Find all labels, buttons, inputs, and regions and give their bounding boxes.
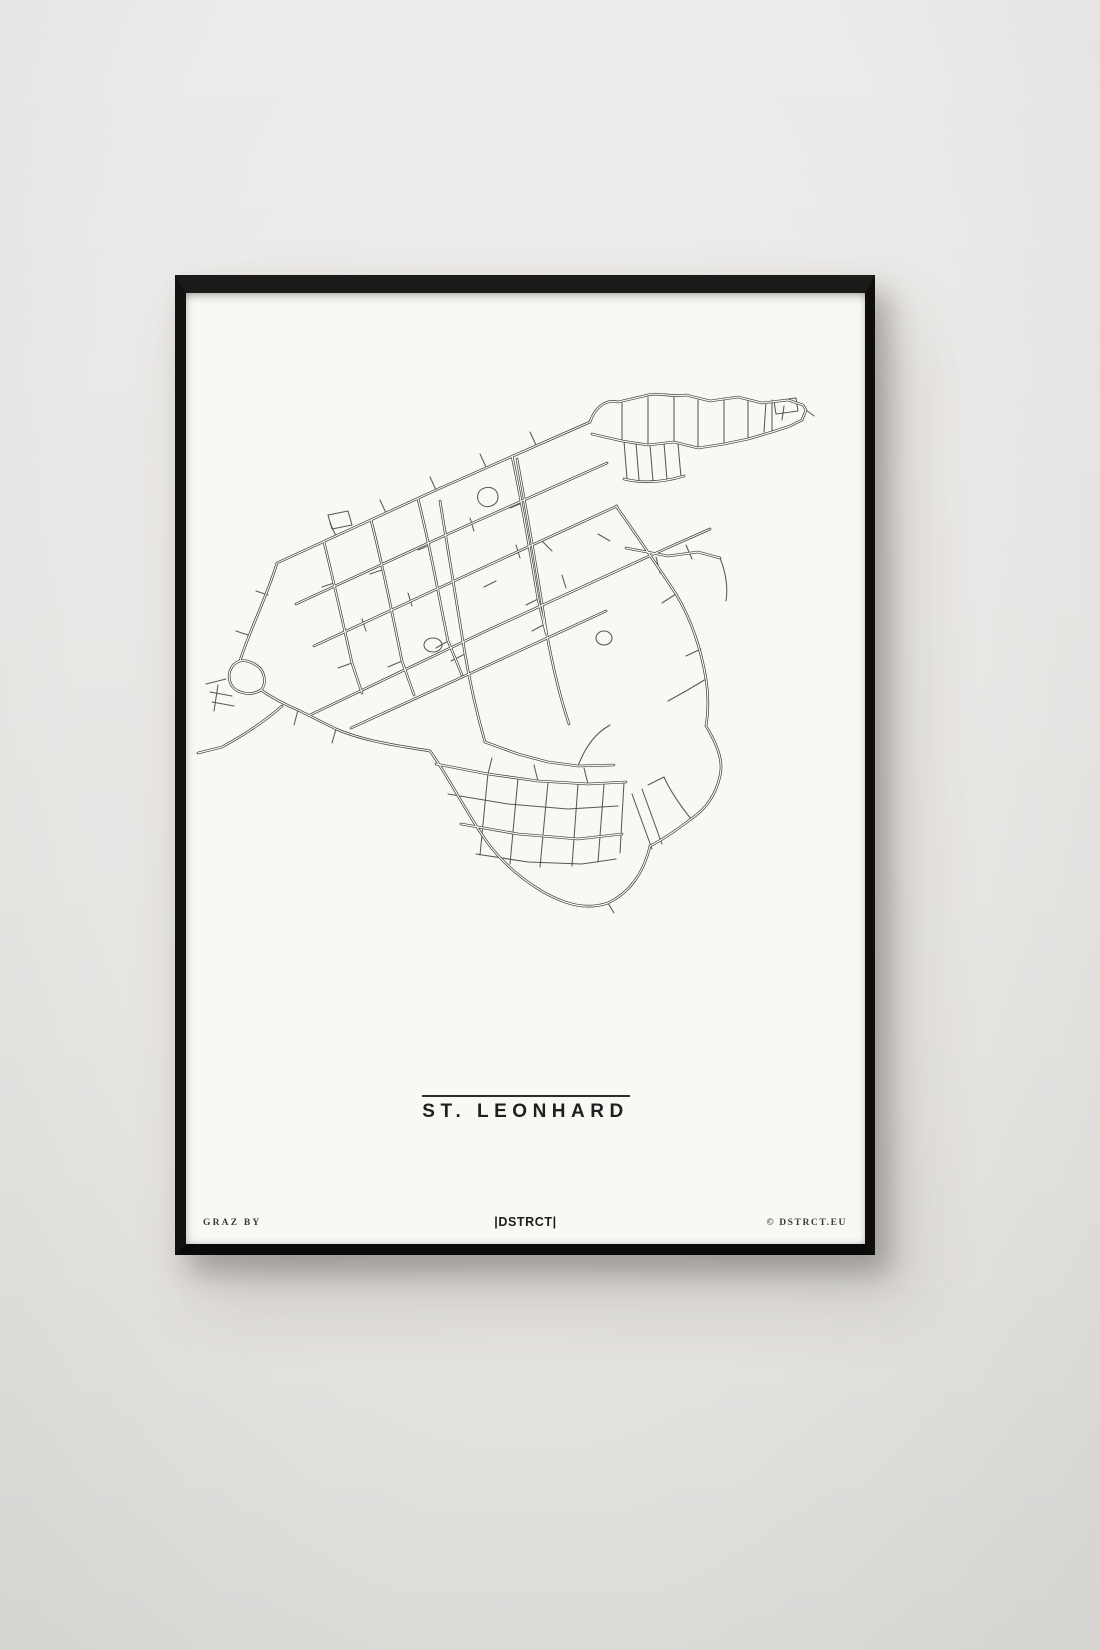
street-path <box>598 534 610 541</box>
street-path <box>664 777 691 819</box>
street-path <box>686 649 701 656</box>
street-path <box>584 768 588 784</box>
street-path <box>592 420 802 448</box>
street-path <box>650 726 721 846</box>
street-path <box>430 751 608 906</box>
footer-brand-logo: |DSTRCT| <box>186 1215 865 1229</box>
street-path <box>596 631 612 645</box>
street-path <box>540 782 548 867</box>
street-path <box>562 575 566 588</box>
street-path <box>578 725 610 766</box>
street-path <box>530 432 536 445</box>
street-path <box>542 541 552 551</box>
street-path <box>440 501 485 742</box>
street-path <box>592 420 802 448</box>
street-path <box>478 487 499 506</box>
street-path <box>480 454 486 467</box>
street-path <box>572 784 578 866</box>
street-path <box>668 679 706 701</box>
street-path <box>236 631 248 635</box>
street-path <box>294 710 298 725</box>
street-path <box>662 594 676 603</box>
street-path <box>642 789 662 844</box>
street-path <box>206 679 226 684</box>
street-path <box>624 441 627 479</box>
street-path <box>598 784 604 862</box>
street-path <box>198 706 282 753</box>
street-path <box>430 751 608 906</box>
street-path <box>720 558 727 601</box>
footer-copyright-label: © DSTRCT.EU <box>767 1218 847 1228</box>
street-path <box>626 548 720 558</box>
poster-frame: ST. LEONHARD GRAZ BY |DSTRCT| © DSTRCT.E… <box>175 275 875 1255</box>
poster-title: ST. LEONHARD <box>186 1101 865 1123</box>
street-path <box>510 778 518 864</box>
street-path <box>448 794 618 809</box>
street-path <box>650 445 653 481</box>
street-path <box>198 706 282 753</box>
street-path <box>380 500 386 513</box>
poster-paper: ST. LEONHARD GRAZ BY |DSTRCT| © DSTRCT.E… <box>186 293 865 1244</box>
street-path <box>388 661 402 667</box>
street-path <box>620 782 624 853</box>
street-path <box>806 410 814 416</box>
street-path <box>532 624 545 631</box>
street-path <box>430 477 436 490</box>
street-path <box>436 764 626 784</box>
street-path <box>370 570 382 574</box>
street-path <box>616 506 708 726</box>
street-path <box>351 611 606 728</box>
street-path <box>650 726 721 846</box>
title-rule <box>422 1095 630 1097</box>
street-path <box>338 663 352 668</box>
street-path <box>332 729 336 743</box>
street-path <box>526 599 538 605</box>
street-path <box>328 511 352 529</box>
street-path <box>534 765 538 781</box>
street-path <box>608 846 650 903</box>
street-path <box>210 692 232 696</box>
street-path <box>424 638 442 652</box>
street-path <box>616 506 708 726</box>
street-path <box>484 581 496 587</box>
street-path <box>214 685 218 711</box>
street-path <box>485 742 614 766</box>
street-path <box>632 794 652 849</box>
street-path <box>488 758 492 774</box>
street-path <box>636 443 639 480</box>
street-path <box>664 443 667 480</box>
street-path <box>608 903 614 913</box>
street-path <box>764 402 766 432</box>
street-path <box>648 777 664 785</box>
street-path <box>608 846 650 903</box>
street-path <box>678 444 681 477</box>
